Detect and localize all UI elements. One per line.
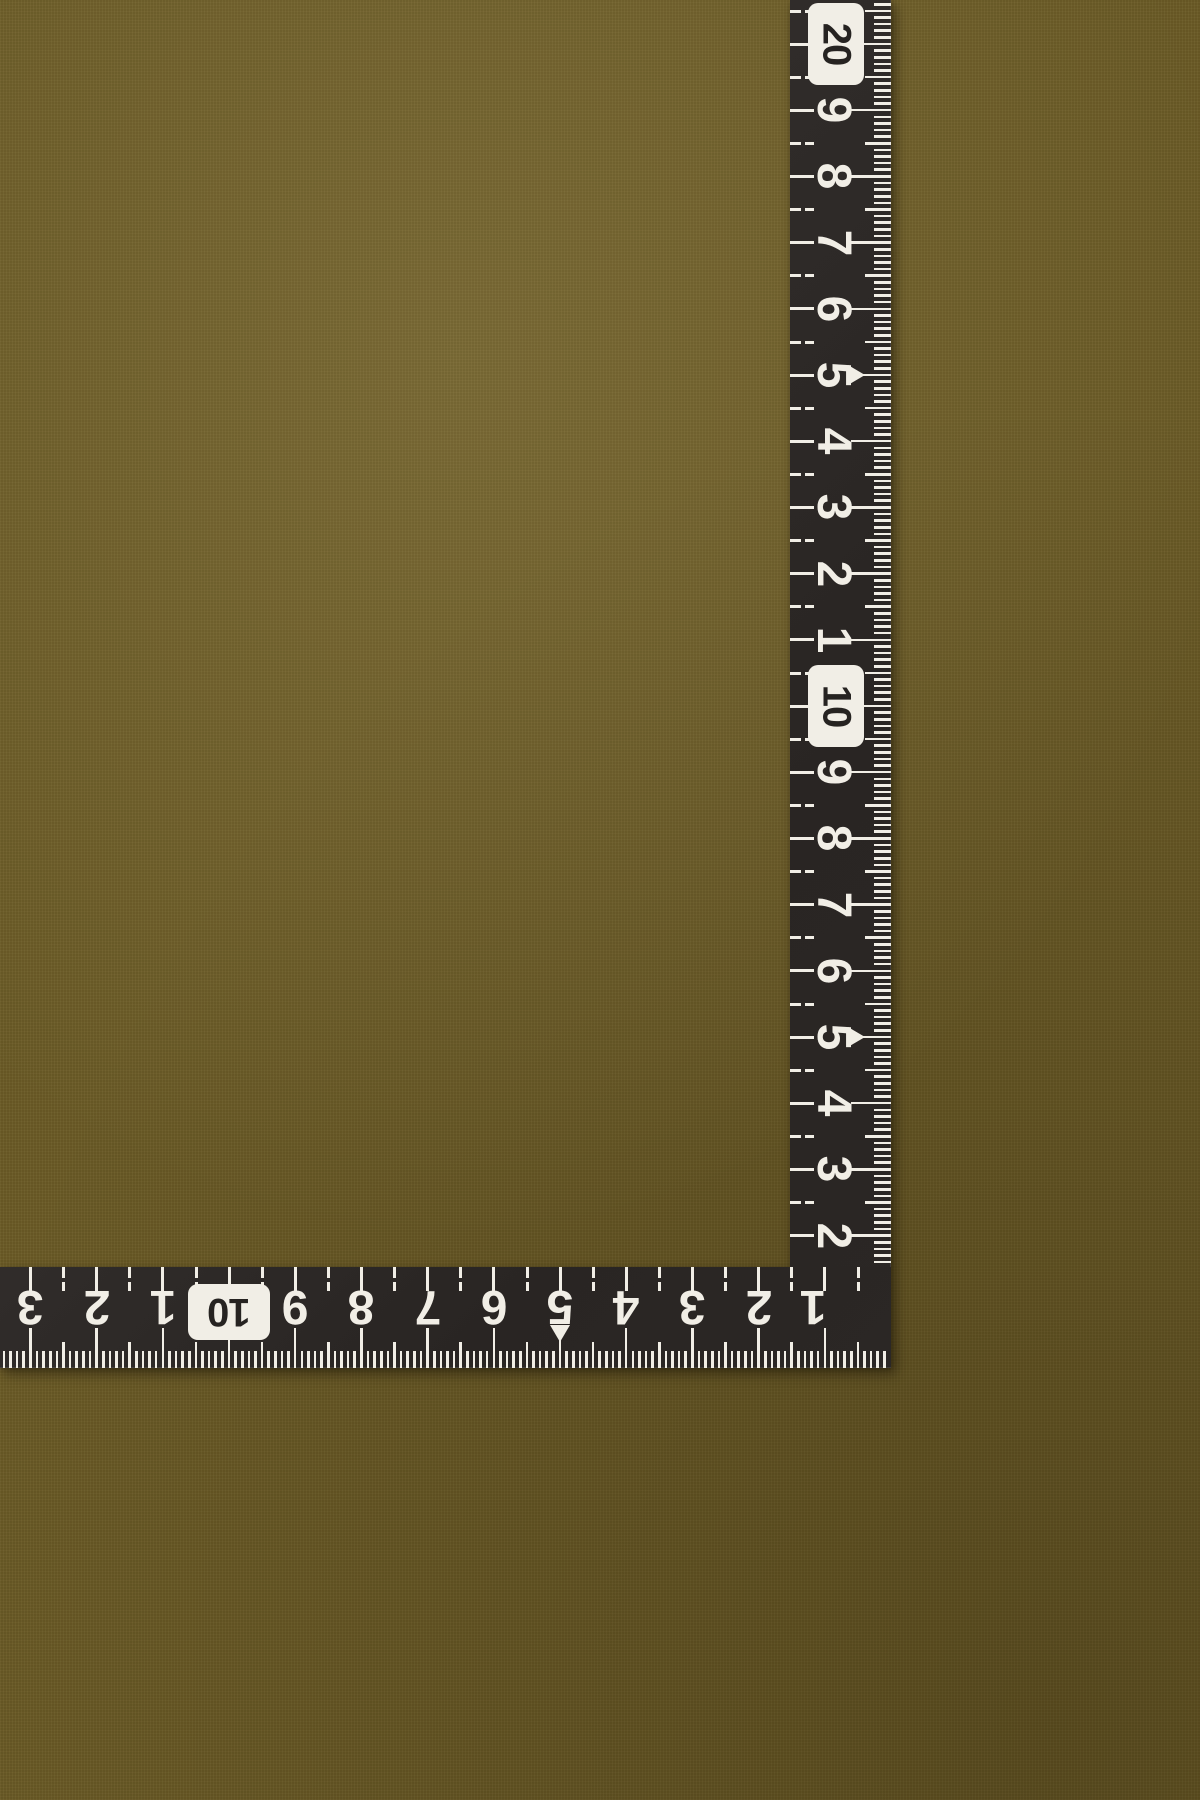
mm-tick <box>874 367 891 370</box>
mm-tick <box>874 599 891 602</box>
mm-tick <box>874 228 891 231</box>
mm-tick <box>874 546 891 549</box>
half-cm-dash <box>526 1267 529 1278</box>
mm-tick <box>22 1351 25 1368</box>
mm-tick <box>784 1351 787 1368</box>
mm-tick <box>874 566 891 569</box>
half-cm-tick <box>393 1342 396 1368</box>
cm-number: 9 <box>809 87 857 133</box>
half-cm-dash <box>790 473 801 476</box>
mm-tick <box>874 1188 891 1191</box>
mm-tick <box>287 1351 290 1368</box>
half-cm-tick <box>865 341 891 344</box>
cm-number: 2 <box>74 1282 120 1330</box>
half-cm-dash <box>805 870 814 873</box>
mm-tick <box>874 784 891 787</box>
mm-tick <box>874 989 891 992</box>
mm-tick <box>874 586 891 589</box>
mm-tick <box>874 877 891 880</box>
mm-tick <box>874 235 891 238</box>
cm-number-box: 20 <box>808 3 864 85</box>
mm-tick <box>850 1351 853 1368</box>
mm-tick <box>874 678 891 681</box>
mm-tick <box>874 1128 891 1131</box>
cm-tick <box>757 1328 760 1368</box>
mm-tick <box>874 16 891 19</box>
mm-tick <box>102 1351 105 1368</box>
cm-number: 7 <box>405 1282 451 1330</box>
mm-tick <box>874 718 891 721</box>
half-cm-tick <box>790 1342 793 1368</box>
mm-tick <box>737 1351 740 1368</box>
mm-tick <box>874 1221 891 1224</box>
mm-tick <box>241 1351 244 1368</box>
half-cm-dash <box>805 1201 814 1204</box>
mm-tick <box>380 1351 383 1368</box>
cm-number-box: 10 <box>188 1284 270 1340</box>
half-cm-tick <box>658 1342 661 1368</box>
mm-tick <box>874 499 891 502</box>
mm-tick <box>367 1351 370 1368</box>
mm-tick <box>874 857 891 860</box>
mm-tick <box>874 1049 891 1052</box>
mm-tick <box>684 1351 687 1368</box>
mm-tick <box>618 1351 621 1368</box>
mm-tick <box>874 850 891 853</box>
mm-tick <box>874 890 891 893</box>
half-cm-dash <box>724 1267 727 1278</box>
mm-tick <box>400 1351 403 1368</box>
half-cm-dash <box>658 1267 661 1278</box>
mm-tick <box>135 1351 138 1368</box>
half-cm-dash <box>592 1282 595 1291</box>
mm-tick <box>874 447 891 450</box>
ruler-horizontal-arm: 12345678910123 <box>0 1267 891 1368</box>
mm-tick <box>874 625 891 628</box>
mm-tick <box>214 1351 217 1368</box>
mm-tick <box>804 1351 807 1368</box>
half-cm-tick <box>327 1342 330 1368</box>
half-cm-dash <box>459 1267 462 1278</box>
mm-tick <box>830 1351 833 1368</box>
half-cm-dash <box>790 672 801 675</box>
mm-tick <box>874 764 891 767</box>
mm-tick <box>874 824 891 827</box>
mm-tick <box>874 758 891 761</box>
half-cm-dash <box>790 870 801 873</box>
mm-tick <box>874 1261 891 1264</box>
mm-tick <box>777 1351 780 1368</box>
mm-tick <box>874 433 891 436</box>
mm-tick <box>874 1009 891 1012</box>
half-cm-tick <box>526 1342 529 1368</box>
mm-tick <box>874 480 891 483</box>
mm-tick <box>579 1351 582 1368</box>
mm-tick <box>665 1351 668 1368</box>
mm-tick <box>466 1351 469 1368</box>
mm-tick <box>874 1241 891 1244</box>
mm-tick <box>874 420 891 423</box>
mm-tick <box>876 1351 879 1368</box>
mm-tick <box>874 1161 891 1164</box>
mm-tick <box>188 1351 191 1368</box>
half-cm-dash <box>261 1267 264 1278</box>
mm-tick <box>208 1351 211 1368</box>
half-cm-tick <box>857 1342 860 1368</box>
mm-tick <box>874 1075 891 1078</box>
mm-tick <box>109 1351 112 1368</box>
half-cm-dash <box>327 1282 330 1291</box>
mm-tick <box>874 956 891 959</box>
mm-tick <box>874 96 891 99</box>
half-cm-tick <box>459 1342 462 1368</box>
mm-tick <box>387 1351 390 1368</box>
half-cm-dash <box>790 208 801 211</box>
mm-tick <box>874 1175 891 1178</box>
half-cm-dash <box>805 407 814 410</box>
half-cm-dash <box>790 10 801 13</box>
mm-tick <box>874 360 891 363</box>
half-cm-dash <box>805 1003 814 1006</box>
half-cm-dash <box>592 1267 595 1278</box>
half-cm-tick <box>865 804 891 807</box>
mm-tick <box>254 1351 257 1368</box>
half-cm-tick <box>195 1342 198 1368</box>
mm-tick <box>572 1351 575 1368</box>
mm-tick <box>874 380 891 383</box>
half-cm-dash <box>790 1267 793 1278</box>
mm-tick <box>89 1351 92 1368</box>
arrow-marker <box>848 1027 865 1047</box>
mm-tick <box>874 1022 891 1025</box>
cm-number: 6 <box>471 1282 517 1330</box>
mm-tick <box>874 1016 891 1019</box>
mm-tick <box>874 427 891 430</box>
mm-tick <box>874 1195 891 1198</box>
cm-tick <box>824 1328 827 1368</box>
mm-tick <box>874 943 891 946</box>
mm-tick <box>874 1214 891 1217</box>
mm-tick <box>420 1351 423 1368</box>
cm-number: 20 <box>816 23 856 66</box>
half-cm-dash <box>805 804 814 807</box>
mm-tick <box>612 1351 615 1368</box>
mm-tick <box>598 1351 601 1368</box>
cm-number: 10 <box>208 1292 251 1332</box>
mm-tick <box>874 486 891 489</box>
mm-tick <box>874 1062 891 1065</box>
mm-tick <box>704 1351 707 1368</box>
cm-number: 2 <box>809 1213 857 1259</box>
mm-tick <box>874 89 891 92</box>
mm-tick <box>874 413 891 416</box>
mm-tick <box>874 864 891 867</box>
half-cm-tick <box>865 407 891 410</box>
mm-tick <box>837 1351 840 1368</box>
half-cm-dash <box>393 1282 396 1291</box>
mm-tick <box>817 1351 820 1368</box>
half-cm-dash <box>805 473 814 476</box>
arrow-marker <box>550 1325 570 1342</box>
half-cm-dash <box>790 936 801 939</box>
mm-tick <box>479 1351 482 1368</box>
mm-tick <box>874 1082 891 1085</box>
mm-tick <box>874 559 891 562</box>
mm-tick <box>874 221 891 224</box>
half-cm-dash <box>857 1267 860 1278</box>
mm-tick <box>545 1351 548 1368</box>
mm-tick <box>874 354 891 357</box>
mm-tick <box>506 1351 509 1368</box>
half-cm-dash <box>526 1282 529 1291</box>
mm-tick <box>320 1351 323 1368</box>
mm-tick <box>883 1351 886 1368</box>
mm-tick <box>874 1029 891 1032</box>
half-cm-tick <box>865 473 891 476</box>
mm-tick <box>874 188 891 191</box>
mm-tick <box>440 1351 443 1368</box>
mm-tick <box>874 288 891 291</box>
half-cm-tick <box>865 1201 891 1204</box>
mm-tick <box>771 1351 774 1368</box>
mm-tick <box>874 910 891 913</box>
half-cm-tick <box>865 936 891 939</box>
mm-tick <box>810 1351 813 1368</box>
cm-number-box: 10 <box>808 665 864 747</box>
mm-tick <box>638 1351 641 1368</box>
mm-tick <box>874 314 891 317</box>
mm-tick <box>797 1351 800 1368</box>
mm-tick <box>874 1089 891 1092</box>
mm-tick <box>874 23 891 26</box>
half-cm-dash <box>128 1267 131 1278</box>
mm-tick <box>874 645 891 648</box>
half-cm-tick <box>865 738 891 741</box>
mm-tick <box>347 1351 350 1368</box>
mm-tick <box>874 149 891 152</box>
mm-tick <box>446 1351 449 1368</box>
mm-tick <box>874 917 891 920</box>
cm-tick <box>426 1328 429 1368</box>
mm-tick <box>874 182 891 185</box>
mm-tick <box>874 963 891 966</box>
half-cm-dash <box>805 1135 814 1138</box>
half-cm-dash <box>805 208 814 211</box>
mm-tick <box>874 778 891 781</box>
mm-tick <box>874 791 891 794</box>
half-cm-dash <box>790 76 801 79</box>
cm-tick <box>625 1328 628 1368</box>
mm-tick <box>874 453 891 456</box>
mm-tick <box>874 725 891 728</box>
mm-tick <box>175 1351 178 1368</box>
mm-tick <box>874 36 891 39</box>
cm-number: 1 <box>809 617 857 663</box>
mm-tick <box>122 1351 125 1368</box>
cm-number: 10 <box>816 685 856 728</box>
mm-tick <box>82 1351 85 1368</box>
l-square-ruler: 1234567891012345678920 12345678910123 <box>0 0 1200 1800</box>
half-cm-dash <box>790 738 801 741</box>
mm-tick <box>181 1351 184 1368</box>
mm-tick <box>16 1351 19 1368</box>
mm-tick <box>874 281 891 284</box>
mm-tick <box>155 1351 158 1368</box>
mm-tick <box>874 996 891 999</box>
mm-tick <box>56 1351 59 1368</box>
mm-tick <box>874 255 891 258</box>
mm-tick <box>142 1351 145 1368</box>
half-cm-tick <box>128 1342 131 1368</box>
mm-tick <box>248 1351 251 1368</box>
mm-tick <box>874 1109 891 1112</box>
mm-tick <box>751 1351 754 1368</box>
cm-number: 4 <box>603 1282 649 1330</box>
half-cm-tick <box>865 142 891 145</box>
mm-tick <box>49 1351 52 1368</box>
mm-tick <box>605 1351 608 1368</box>
mm-tick <box>874 1228 891 1231</box>
mm-tick <box>874 334 891 337</box>
mm-tick <box>75 1351 78 1368</box>
mm-tick <box>874 202 891 205</box>
mm-tick <box>874 129 891 132</box>
photo-stage: 1234567891012345678920 12345678910123 <box>0 0 1200 1800</box>
half-cm-dash <box>62 1267 65 1278</box>
mm-tick <box>874 665 891 668</box>
half-cm-dash <box>790 804 801 807</box>
half-cm-dash <box>327 1267 330 1278</box>
mm-tick <box>874 619 891 622</box>
half-cm-tick <box>592 1342 595 1368</box>
mm-tick <box>874 3 891 6</box>
mm-tick <box>874 460 891 463</box>
mm-tick <box>874 1142 891 1145</box>
mm-tick <box>453 1351 456 1368</box>
mm-tick <box>3 1351 6 1368</box>
mm-tick <box>874 1248 891 1251</box>
mm-tick <box>473 1351 476 1368</box>
half-cm-tick <box>865 10 891 13</box>
mm-tick <box>36 1351 39 1368</box>
mm-tick <box>585 1351 588 1368</box>
mm-tick <box>870 1351 873 1368</box>
half-cm-dash <box>790 539 801 542</box>
mm-tick <box>874 883 891 886</box>
cm-tick <box>294 1328 297 1368</box>
mm-tick <box>874 466 891 469</box>
mm-tick <box>744 1351 747 1368</box>
mm-tick <box>69 1351 72 1368</box>
half-cm-dash <box>805 1069 814 1072</box>
cm-number: 7 <box>809 220 857 266</box>
mm-tick <box>874 268 891 271</box>
mm-tick <box>764 1351 767 1368</box>
mm-tick <box>698 1351 701 1368</box>
mm-tick <box>519 1351 522 1368</box>
half-cm-dash <box>790 407 801 410</box>
mm-tick <box>486 1351 489 1368</box>
half-cm-dash <box>459 1282 462 1291</box>
mm-tick <box>874 533 891 536</box>
cm-number: 3 <box>809 1146 857 1192</box>
half-cm-tick <box>724 1342 727 1368</box>
half-cm-tick <box>865 1069 891 1072</box>
half-cm-dash <box>790 1135 801 1138</box>
mm-tick <box>671 1351 674 1368</box>
mm-tick <box>874 526 891 529</box>
mm-tick <box>874 579 891 582</box>
mm-tick <box>874 1148 891 1151</box>
half-cm-dash <box>790 1201 801 1204</box>
mm-tick <box>874 155 891 158</box>
mm-tick <box>874 215 891 218</box>
mm-tick <box>874 116 891 119</box>
mm-tick <box>874 751 891 754</box>
mm-tick <box>148 1351 151 1368</box>
mm-tick <box>115 1351 118 1368</box>
mm-tick <box>874 102 891 105</box>
mm-tick <box>874 195 891 198</box>
mm-tick <box>874 612 891 615</box>
mm-tick <box>863 1351 866 1368</box>
mm-tick <box>874 830 891 833</box>
mm-tick <box>373 1351 376 1368</box>
cm-number: 2 <box>809 551 857 597</box>
mm-tick <box>874 923 891 926</box>
half-cm-dash <box>805 142 814 145</box>
cm-number: 7 <box>809 882 857 928</box>
cm-number: 1 <box>140 1282 186 1330</box>
mm-tick <box>874 1056 891 1059</box>
cm-number: 6 <box>809 286 857 332</box>
mm-tick <box>874 897 891 900</box>
half-cm-dash <box>724 1282 727 1291</box>
mm-tick <box>301 1351 304 1368</box>
cm-number: 4 <box>809 418 857 464</box>
half-cm-dash <box>790 605 801 608</box>
mm-tick <box>874 1208 891 1211</box>
mm-tick <box>874 983 891 986</box>
mm-tick <box>874 1042 891 1045</box>
mm-tick <box>718 1351 721 1368</box>
mm-tick <box>874 731 891 734</box>
cm-tick <box>95 1328 98 1368</box>
cm-tick <box>691 1328 694 1368</box>
cm-number: 3 <box>7 1282 53 1330</box>
mm-tick <box>874 261 891 264</box>
mm-tick <box>874 1115 891 1118</box>
mm-tick <box>353 1351 356 1368</box>
half-cm-dash <box>805 539 814 542</box>
half-cm-dash <box>790 1003 801 1006</box>
cm-number: 9 <box>809 749 857 795</box>
half-cm-dash <box>857 1282 860 1291</box>
mm-tick <box>874 394 891 397</box>
cm-number: 8 <box>809 815 857 861</box>
mm-tick <box>874 592 891 595</box>
cm-tick <box>29 1328 32 1368</box>
half-cm-dash <box>393 1267 396 1278</box>
mm-tick <box>874 387 891 390</box>
half-cm-dash <box>790 274 801 277</box>
mm-tick <box>874 976 891 979</box>
half-cm-tick <box>865 870 891 873</box>
mm-tick <box>874 69 891 72</box>
arrow-marker <box>848 365 865 385</box>
mm-tick <box>234 1351 237 1368</box>
mm-tick <box>843 1351 846 1368</box>
